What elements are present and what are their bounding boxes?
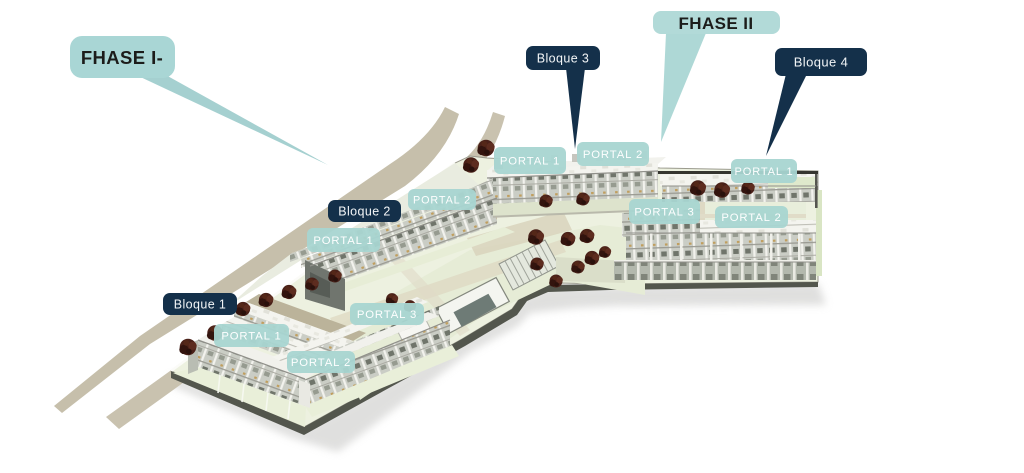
svg-text:PORTAL 3: PORTAL 3 <box>634 207 694 219</box>
svg-text:Bloque 3: Bloque 3 <box>537 52 590 66</box>
svg-text:PORTAL 2: PORTAL 2 <box>583 149 643 161</box>
svg-text:PORTAL 1: PORTAL 1 <box>500 156 560 168</box>
svg-text:FHASE I-: FHASE I- <box>81 47 163 68</box>
svg-text:PORTAL 2: PORTAL 2 <box>721 212 781 224</box>
svg-text:PORTAL 3: PORTAL 3 <box>357 309 417 321</box>
svg-text:Bloque 4: Bloque 4 <box>794 55 849 70</box>
svg-text:PORTAL 2: PORTAL 2 <box>291 357 351 369</box>
svg-text:Bloque 1: Bloque 1 <box>174 298 227 312</box>
svg-text:PORTAL 1: PORTAL 1 <box>735 166 794 178</box>
svg-text:PORTAL 1: PORTAL 1 <box>221 331 281 343</box>
svg-text:Bloque 2: Bloque 2 <box>338 205 391 219</box>
svg-text:PORTAL 2: PORTAL 2 <box>413 194 471 206</box>
svg-text:PORTAL 1: PORTAL 1 <box>313 235 373 247</box>
svg-text:FHASE II: FHASE II <box>679 14 754 33</box>
